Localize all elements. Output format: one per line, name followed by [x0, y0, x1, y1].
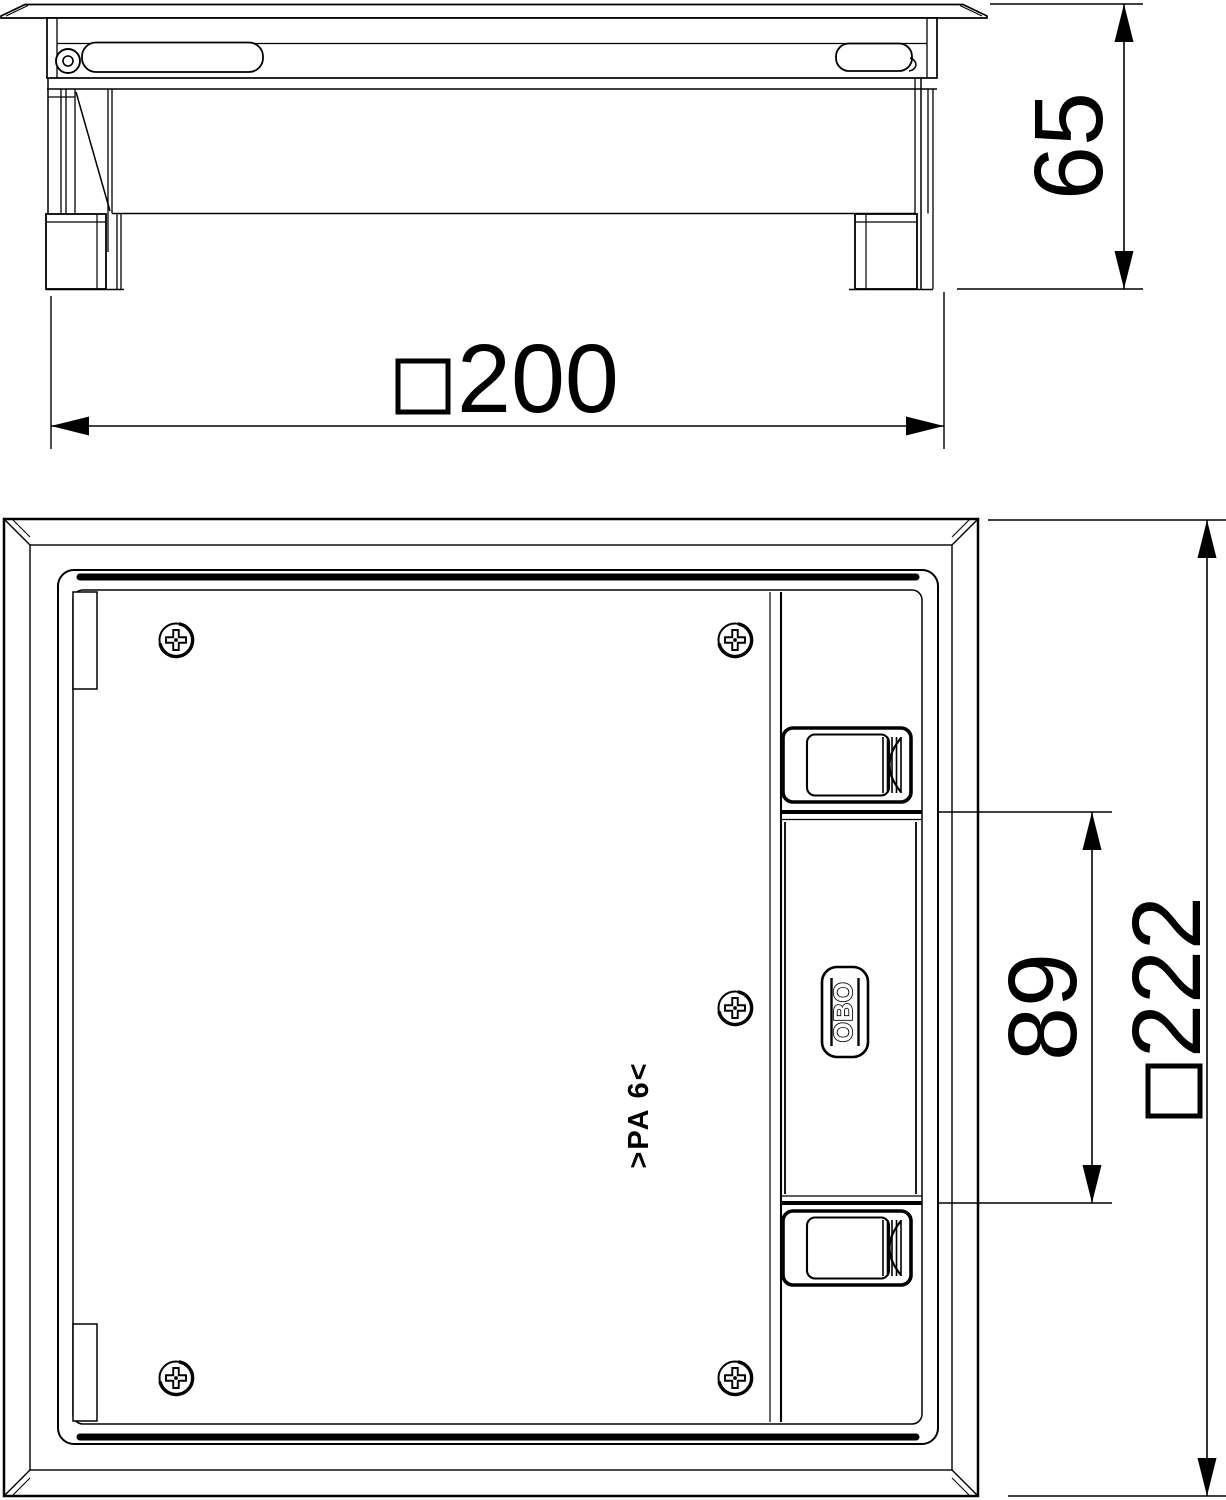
- arrowhead-down: [1083, 1165, 1102, 1203]
- plan-cover-panel: [73, 590, 922, 1424]
- arrowhead-right: [906, 417, 944, 436]
- hinge-tab-bottom: [73, 1324, 97, 1421]
- right-foot: [855, 214, 917, 289]
- arrowhead-down: [1115, 251, 1134, 289]
- obo-logo: OBO: [822, 967, 868, 1057]
- plan-view: OBO >PA 6<: [4, 519, 978, 1496]
- latch-bottom: [783, 1211, 911, 1285]
- dimension-height-65: 65: [957, 4, 1143, 289]
- screw-icon: [160, 624, 193, 657]
- material-marking: >PA 6<: [623, 1061, 655, 1168]
- dim-label-65: 65: [1014, 92, 1123, 200]
- obo-logo-text: OBO: [828, 982, 858, 1043]
- arrowhead-up: [1198, 520, 1217, 558]
- dim-label-222: 222: [1112, 896, 1221, 1058]
- screw-icon: [719, 1362, 752, 1395]
- latch-top: [783, 728, 911, 802]
- arrowhead-left: [51, 417, 89, 436]
- arrowhead-up: [1115, 4, 1134, 42]
- side-view: [1, 5, 987, 290]
- dim-label-89: 89: [988, 953, 1097, 1061]
- floor-box-technical-drawing: 65 200: [0, 0, 1226, 1500]
- dimension-width-200: 200: [51, 292, 944, 449]
- screw-icon: [160, 1362, 193, 1395]
- square-symbol: [398, 361, 448, 412]
- arrowhead-up: [1083, 812, 1102, 850]
- screw-icon: [719, 624, 752, 657]
- arrowhead-down: [1198, 1458, 1217, 1496]
- technical-drawing-page: 65 200: [0, 0, 1226, 1500]
- hinge-tab-top: [73, 592, 97, 689]
- left-lever-handle: [82, 43, 263, 73]
- dim-label-200: 200: [457, 324, 619, 433]
- square-symbol: [1148, 1066, 1200, 1116]
- screw-icon: [719, 992, 752, 1025]
- side-lid-plate: [1, 5, 987, 19]
- right-lever-handle: [836, 44, 912, 72]
